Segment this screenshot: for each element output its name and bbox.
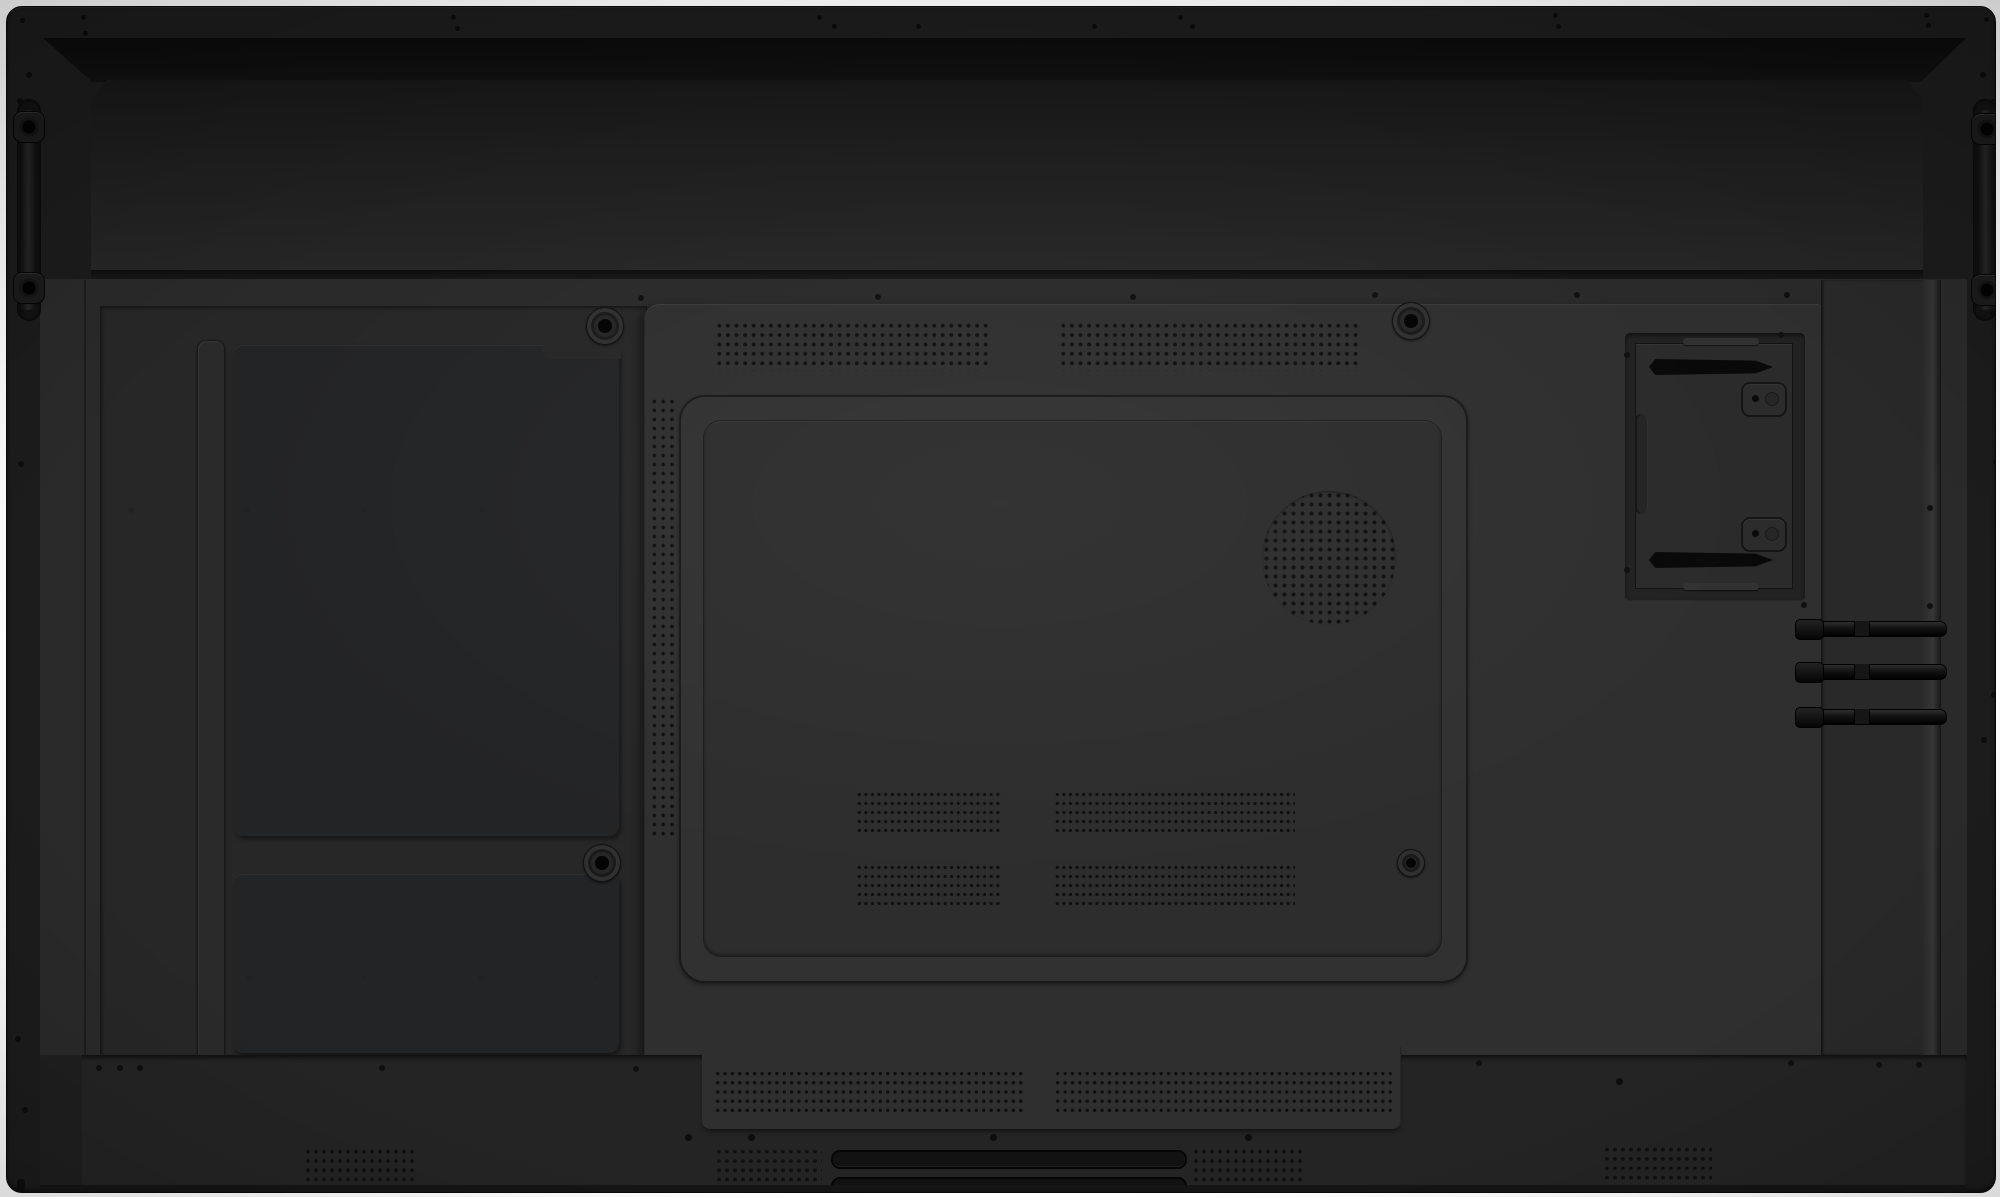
speaker-grille: [1262, 491, 1396, 625]
screw-ring-icon: [1765, 527, 1779, 541]
lower-vent-strip-left: [714, 1069, 1024, 1115]
screw-boss-top-right: [1392, 302, 1430, 340]
left-handle-boss-bottom: [13, 272, 45, 304]
screw-ring-icon: [1765, 392, 1779, 406]
ops-top-tab: [1683, 338, 1759, 345]
ops-side-groove: [1635, 414, 1648, 514]
panel-corner-notch: [543, 343, 621, 359]
ops-screw-plate-bottom: [1741, 517, 1787, 552]
screw-boss-mid-right: [1397, 849, 1425, 877]
antenna-band: [1854, 621, 1870, 636]
antenna-hub: [1795, 619, 1824, 640]
antenna-band: [1854, 709, 1870, 724]
left-vent-strip: [650, 397, 677, 839]
bottom-handle-slot-upper: [831, 1150, 1187, 1169]
product-photo-stage: [0, 0, 2000, 1197]
lower-left-service-panel: [233, 874, 619, 1053]
right-handle-boss-bottom: [1971, 274, 1996, 306]
top-vent-grille-right: [1059, 321, 1361, 371]
top-vent-grille-left: [715, 321, 991, 371]
edge-bumper: [17, 1179, 25, 1193]
antenna-hub: [1795, 662, 1824, 683]
left-handle-boss-top: [13, 111, 45, 143]
bottom-shell-edge: [40, 1185, 1967, 1193]
vent-block-4: [1054, 863, 1295, 911]
antenna-hub: [1795, 707, 1824, 728]
left-vertical-seam: [84, 280, 86, 1055]
bottom-band-left-step: [40, 1055, 82, 1189]
lower-vent-strip-right: [1054, 1069, 1394, 1115]
screw-boss-top-left: [586, 307, 624, 345]
vent-block-1: [856, 790, 1003, 835]
screw-pin-icon: [1752, 395, 1759, 402]
antenna-rod-1: [1797, 621, 1947, 637]
screw-pin-icon: [1752, 530, 1759, 537]
antenna-rod-3: [1797, 709, 1947, 725]
ops-mounting-slot-top: [1649, 359, 1773, 375]
antenna-band: [1854, 664, 1870, 679]
top-compartment-bulge: [91, 80, 1923, 272]
ops-mounting-slot-bottom: [1649, 552, 1773, 568]
ops-screw-plate-top: [1741, 382, 1787, 417]
vent-block-3: [856, 863, 1003, 911]
right-handle-boss-top: [1971, 113, 1996, 145]
left-vertical-rib: [198, 341, 224, 1055]
vent-block-2: [1054, 790, 1295, 835]
top-recess-gap: [43, 38, 1966, 82]
antenna-rod-2: [1797, 664, 1947, 680]
display-rear-shell: [6, 6, 1996, 1193]
ops-bottom-tab: [1683, 583, 1759, 590]
upper-left-service-panel: [233, 345, 619, 836]
screw-boss-mid-left: [583, 844, 621, 882]
